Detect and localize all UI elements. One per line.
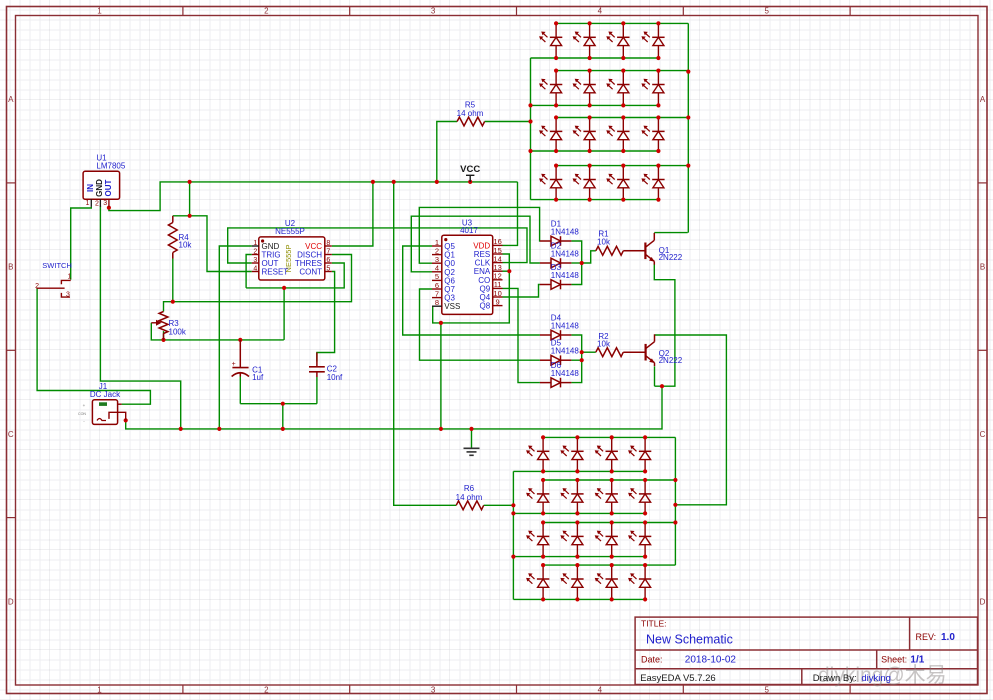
svg-text:10k: 10k <box>179 241 193 250</box>
svg-text:New Schematic: New Schematic <box>646 633 733 647</box>
svg-text:+: + <box>83 403 86 408</box>
svg-text:8: 8 <box>326 240 330 247</box>
svg-text:2N222: 2N222 <box>659 253 683 262</box>
svg-text:LM7805: LM7805 <box>96 162 125 171</box>
svg-text:CON: CON <box>78 412 86 416</box>
svg-text:1: 1 <box>97 7 102 16</box>
svg-text:10nf: 10nf <box>327 373 343 382</box>
svg-text:3: 3 <box>253 257 257 264</box>
svg-text:TITLE:: TITLE: <box>641 619 667 629</box>
svg-text:8: 8 <box>435 298 439 307</box>
svg-text:REV:: REV: <box>916 632 937 642</box>
svg-text:1: 1 <box>86 200 90 207</box>
svg-text:diyking: diyking <box>861 673 891 684</box>
svg-text:2: 2 <box>264 686 269 695</box>
svg-text:IN: IN <box>86 184 95 192</box>
svg-text:4: 4 <box>598 686 603 695</box>
svg-text:3: 3 <box>431 686 436 695</box>
svg-text:Drawn By:: Drawn By: <box>813 673 857 684</box>
svg-text:A: A <box>980 95 986 104</box>
svg-text:1: 1 <box>68 273 72 280</box>
svg-text:D: D <box>8 597 14 606</box>
svg-text:4: 4 <box>598 7 603 16</box>
svg-text:1N4148: 1N4148 <box>551 227 580 236</box>
svg-text:9: 9 <box>496 297 500 306</box>
svg-text:1N4148: 1N4148 <box>551 271 580 280</box>
svg-text:3: 3 <box>66 292 70 299</box>
svg-text:1N4148: 1N4148 <box>551 249 580 258</box>
svg-text:1: 1 <box>253 240 257 247</box>
svg-text:RESET: RESET <box>262 267 289 276</box>
svg-text:1N4148: 1N4148 <box>551 369 580 378</box>
svg-text:CONT: CONT <box>299 267 322 276</box>
svg-text:5: 5 <box>764 686 769 695</box>
svg-text:Q8: Q8 <box>480 302 491 311</box>
svg-text:B: B <box>8 263 13 272</box>
svg-text:+: + <box>232 361 236 368</box>
svg-text:14 ohm: 14 ohm <box>456 493 483 502</box>
svg-text:2: 2 <box>253 248 257 255</box>
svg-text:1: 1 <box>97 686 102 695</box>
svg-text:7: 7 <box>326 248 330 255</box>
svg-text:C: C <box>8 430 14 439</box>
svg-text:10k: 10k <box>597 339 611 348</box>
svg-text:2: 2 <box>95 201 99 208</box>
svg-text:D: D <box>980 597 986 606</box>
svg-text:1uf: 1uf <box>252 373 264 382</box>
svg-text:R6: R6 <box>464 484 475 493</box>
svg-text:1/1: 1/1 <box>910 655 924 666</box>
svg-text:5: 5 <box>764 7 769 16</box>
svg-text:10k: 10k <box>597 238 611 247</box>
svg-text:SWITCH: SWITCH <box>42 261 72 270</box>
svg-text:A: A <box>8 95 14 104</box>
svg-text:2018-10-02: 2018-10-02 <box>685 655 737 666</box>
svg-text:EasyEDA V5.7.26: EasyEDA V5.7.26 <box>640 673 716 684</box>
svg-text:C2: C2 <box>327 365 338 374</box>
svg-text:14 ohm: 14 ohm <box>457 109 484 118</box>
svg-text:VSS: VSS <box>444 302 460 311</box>
svg-text:2: 2 <box>35 283 39 290</box>
svg-text:3: 3 <box>103 200 107 207</box>
svg-text:VCC: VCC <box>460 164 480 175</box>
svg-text:1N4148: 1N4148 <box>551 347 580 356</box>
svg-text:OUT: OUT <box>104 179 113 196</box>
svg-text:Date:: Date: <box>641 655 663 665</box>
svg-text:B: B <box>980 263 985 272</box>
svg-text:2: 2 <box>264 7 269 16</box>
svg-text:GND: GND <box>95 179 104 197</box>
svg-text:5: 5 <box>326 265 330 272</box>
svg-text:4: 4 <box>253 265 257 272</box>
svg-text:1.0: 1.0 <box>941 632 955 643</box>
svg-text:NE555P: NE555P <box>275 227 305 236</box>
svg-text:C: C <box>980 430 986 439</box>
svg-text:DC Jack: DC Jack <box>90 390 121 399</box>
svg-text:1N4148: 1N4148 <box>551 321 580 330</box>
svg-text:4017: 4017 <box>460 226 478 235</box>
svg-text:2N222: 2N222 <box>659 356 683 365</box>
svg-text:R5: R5 <box>465 100 476 109</box>
svg-text:Sheet:: Sheet: <box>881 655 907 665</box>
svg-text:3: 3 <box>431 7 436 16</box>
svg-text:6: 6 <box>326 257 330 264</box>
svg-text:100k: 100k <box>169 327 187 336</box>
